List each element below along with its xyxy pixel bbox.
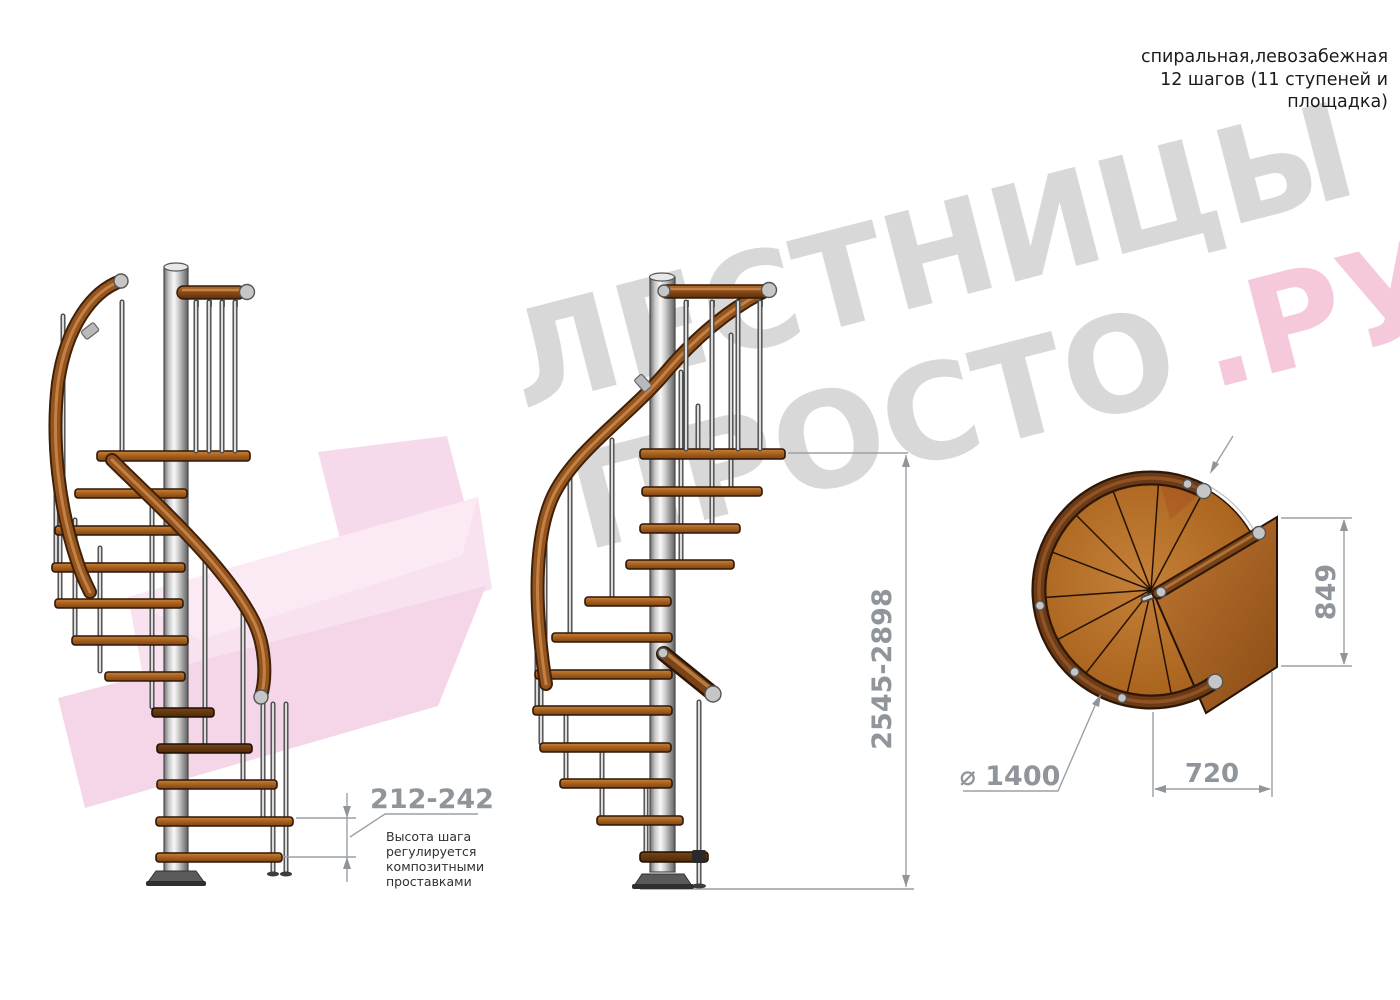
total-height-value: 2545-2898 [867,588,898,750]
step-height-note-1: Высота шага [386,829,471,844]
step-height-value: 212-242 [370,784,494,815]
title-line-3: площадка) [1141,91,1388,114]
ring-end-cap [1196,484,1211,499]
entry-direction-arrow [1210,436,1233,474]
step-height-note-4: проставками [386,874,472,889]
dimension-step-height: 212-242 Высота шага регулируется компози… [284,784,494,889]
ring-end-cap [1208,674,1223,689]
platform-width-value: 720 [1185,759,1239,789]
top-view [1032,471,1277,713]
platform-top-rail [660,285,770,298]
title-line-2: 12 шагов (11 ступеней и [1141,69,1388,92]
staircase-drawing: 212-242 Высота шага регулируется компози… [0,0,1400,1000]
handrail-end-cap [254,690,268,704]
rail-end-cap [240,285,255,300]
support-rods [692,702,706,889]
rail-start-cap [762,283,777,298]
platform-railing [177,285,255,452]
handrail-end-cap [114,274,128,288]
dimension-total-height: 2545-2898 [788,453,910,887]
platform-side-value: 849 [1311,564,1342,620]
handrail-joint [658,648,668,658]
base-flange [632,874,694,889]
side-view-center [533,273,785,889]
hub [1156,587,1166,597]
rail-end-cap [1253,527,1266,540]
title-block: спиральная,левозабежная 12 шагов (11 сту… [1141,46,1388,114]
rail-end-cap [658,285,670,297]
title-line-1: спиральная,левозабежная [1141,46,1388,69]
base-flange [146,871,206,886]
handrail-end-cap [705,686,721,702]
dimension-platform-side: 849 [1281,518,1352,666]
step-height-note-2: регулируется [386,844,476,859]
diameter-value: ⌀ 1400 [960,761,1061,792]
drawing-sheet: ЛЕСТНИЦЫ ПРОСТО.РУ [0,0,1400,1000]
step-height-note-3: композитными [386,859,484,874]
dimension-diameter: ⌀ 1400 [960,694,1101,792]
platform-top-rail [177,286,245,299]
